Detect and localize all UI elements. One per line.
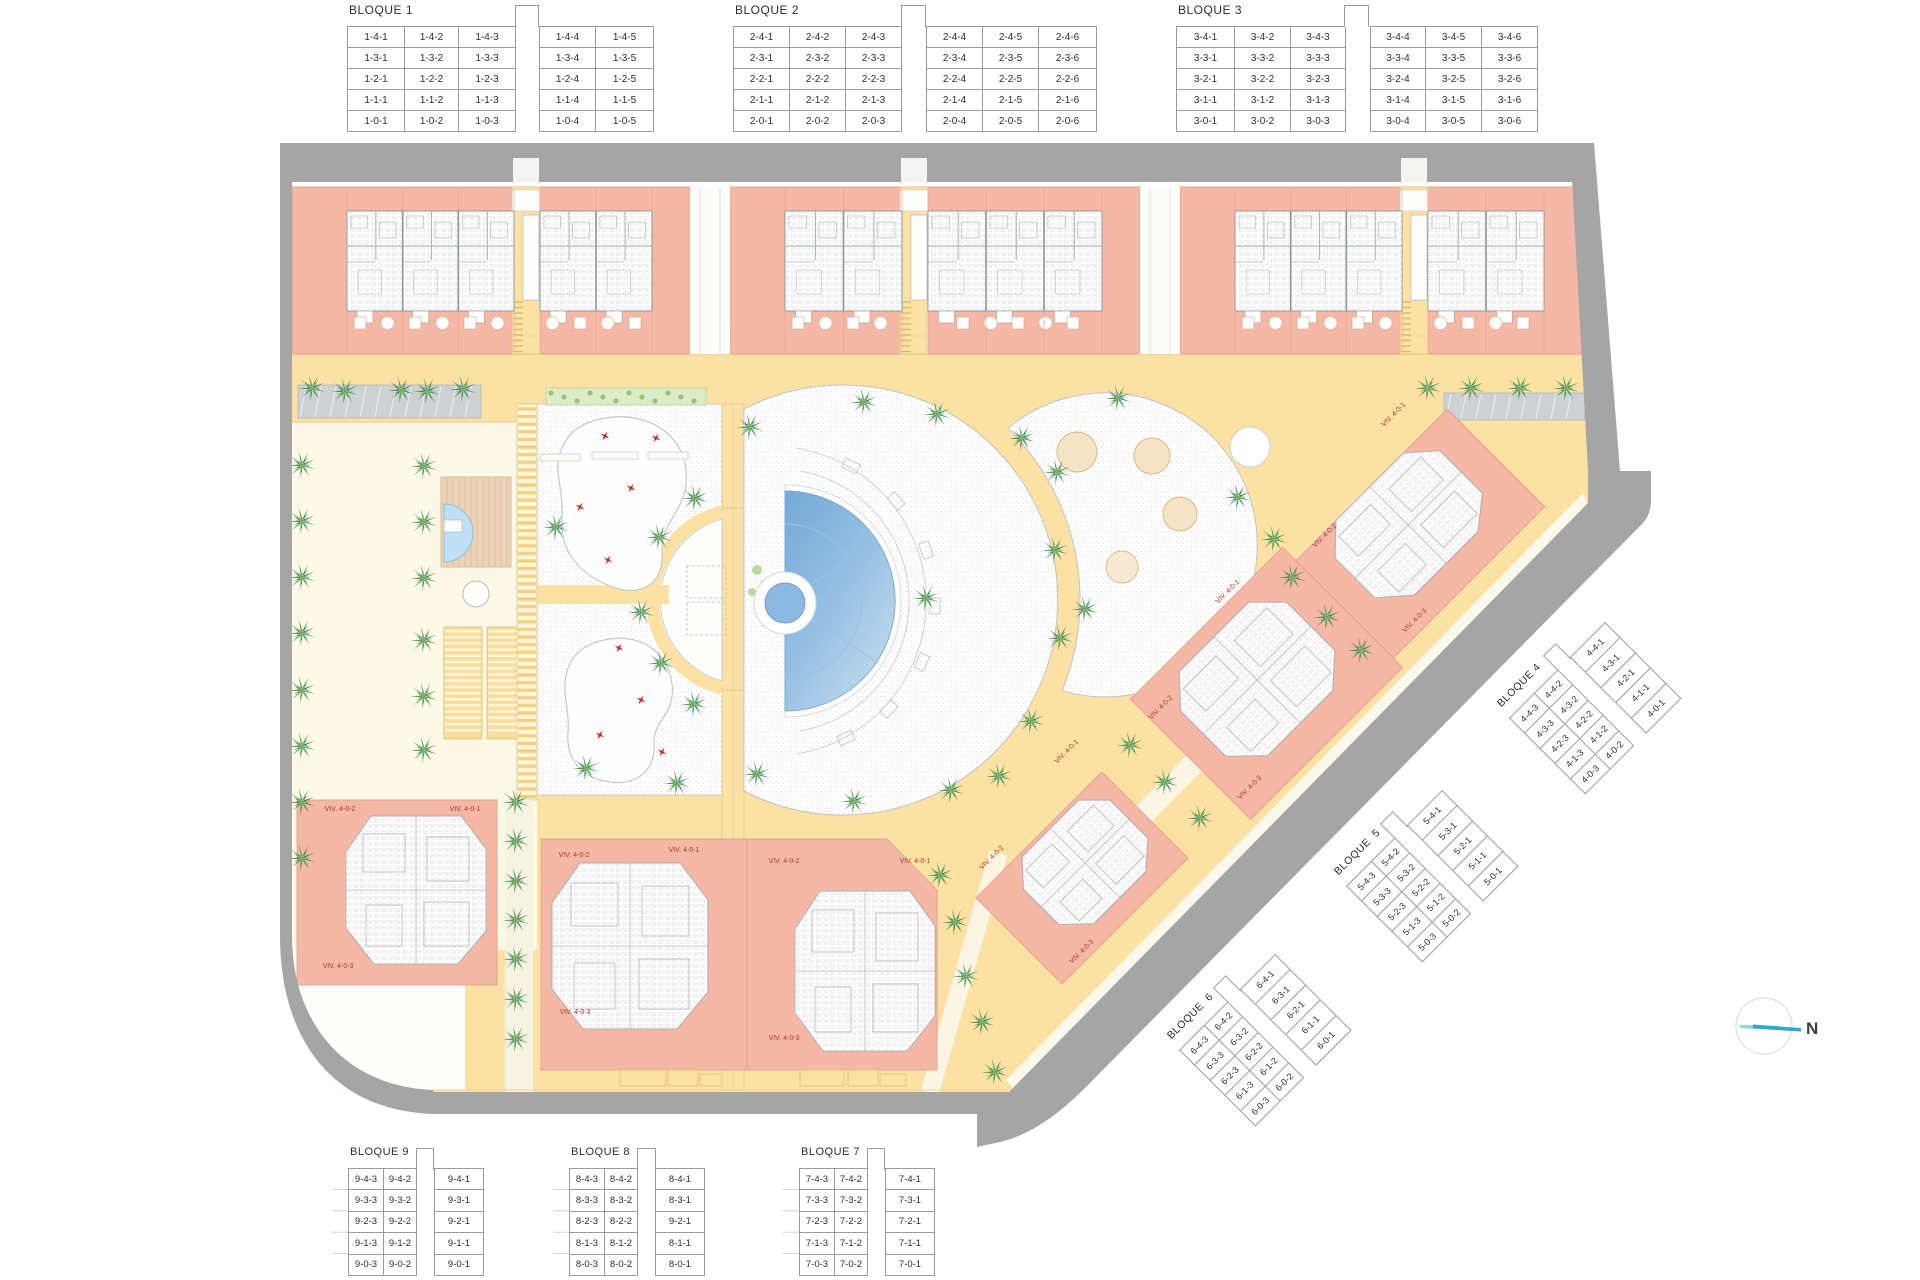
svg-text:VIV. 4-0-1: VIV. 4-0-1 <box>900 858 931 865</box>
svg-text:VIV. 4-0-1: VIV. 4-0-1 <box>669 847 700 854</box>
svg-text:VIV. 4-0-2: VIV. 4-0-2 <box>769 858 800 865</box>
svg-text:VIV. 4-0-3: VIV. 4-0-3 <box>769 1035 800 1042</box>
svg-text:N: N <box>1806 1019 1818 1038</box>
svg-text:VIV. 4-0-3: VIV. 4-0-3 <box>323 963 354 970</box>
svg-text:VIV. 4-0-3: VIV. 4-0-3 <box>560 1009 591 1016</box>
svg-text:VIV. 4-0-2: VIV. 4-0-2 <box>325 806 356 813</box>
svg-text:VIV. 4-0-2: VIV. 4-0-2 <box>559 852 590 859</box>
svg-text:VIV. 4-0-1: VIV. 4-0-1 <box>450 806 481 813</box>
